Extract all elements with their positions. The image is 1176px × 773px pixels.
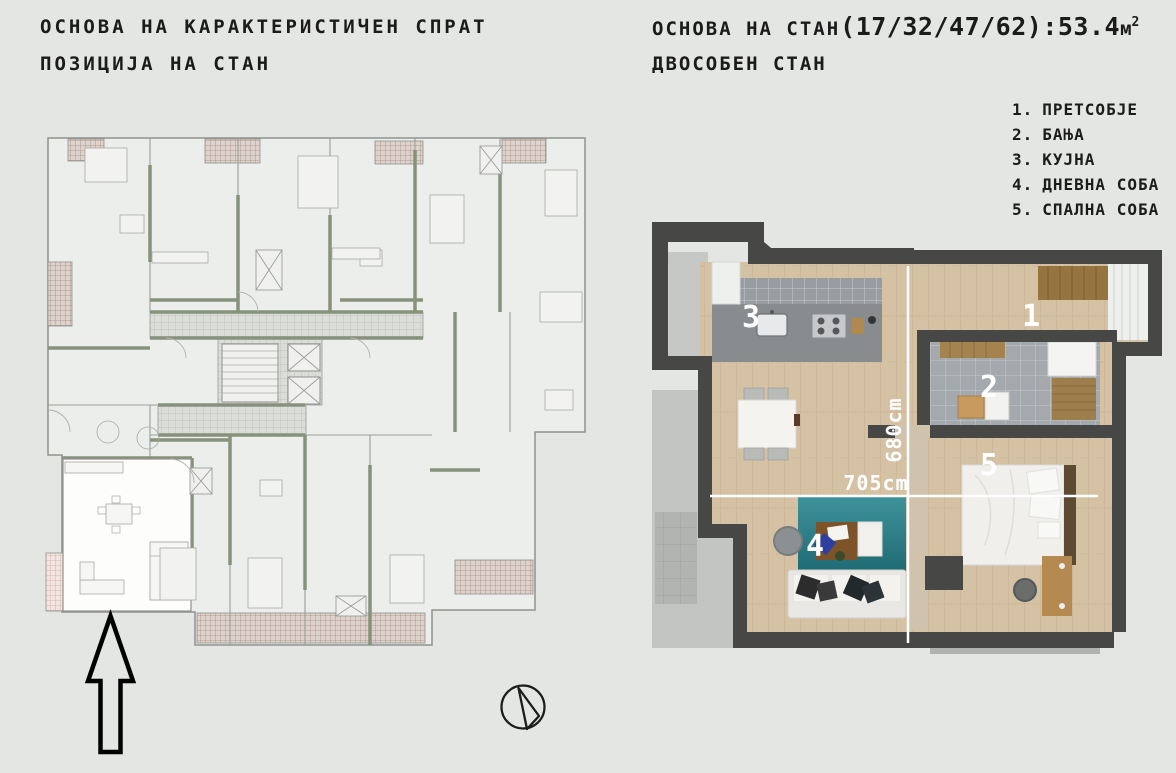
- building-floor-plan: [46, 138, 585, 752]
- hallway-floor: [908, 430, 928, 630]
- room-number-hall: 1: [1022, 299, 1040, 334]
- room-number-living: 4: [806, 529, 824, 564]
- room-number-kitchen: 3: [742, 300, 760, 335]
- floor-plan-sheet: ОСНОВА НА КАРАКТЕРИСТИЧЕН СПРАТ ПОЗИЦИЈА…: [0, 0, 1176, 773]
- room-number-bath: 2: [980, 370, 998, 405]
- position-arrow: [88, 616, 133, 752]
- dim-vertical-label: 680cm: [882, 397, 906, 462]
- dim-horizontal-label: 705cm: [843, 471, 908, 495]
- north-compass-icon: [502, 686, 545, 730]
- plan-drawings: 680cm 705cm 3 1 2 5 4: [0, 0, 1176, 773]
- bathroom-area: [930, 340, 1100, 425]
- apartment-3d-plan: 680cm 705cm 3 1 2 5 4: [652, 222, 1162, 654]
- room-number-bedroom: 5: [980, 448, 998, 483]
